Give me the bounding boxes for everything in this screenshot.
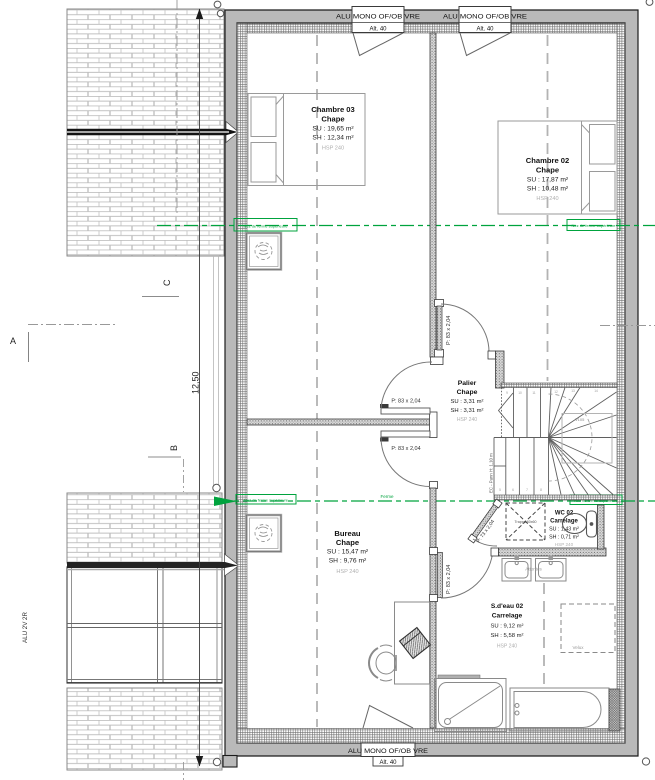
svg-text:SU : 9,12 m²: SU : 9,12 m² xyxy=(490,624,523,630)
svg-text:V105: V105 xyxy=(575,417,585,422)
svg-text:P: 83 x 2,04: P: 83 x 2,04 xyxy=(391,446,420,452)
svg-text:11: 11 xyxy=(532,391,536,395)
svg-text:P: 83 x 2,04: P: 83 x 2,04 xyxy=(446,316,452,345)
svg-text:HSP 240: HSP 240 xyxy=(457,417,477,423)
svg-text:Nez de ferme supérieure: Nez de ferme supérieure xyxy=(244,498,289,503)
svg-text:SH : 3,31 m²: SH : 3,31 m² xyxy=(450,408,483,414)
svg-text:10: 10 xyxy=(518,391,522,395)
svg-text:7: 7 xyxy=(526,488,528,492)
svg-text:B: B xyxy=(169,445,179,451)
svg-text:Chape: Chape xyxy=(336,538,359,547)
svg-text:6: 6 xyxy=(512,488,514,492)
svg-text:9: 9 xyxy=(506,391,508,395)
svg-text:S.d'eau 02: S.d'eau 02 xyxy=(491,603,524,610)
svg-text:SH : 9,76 m²: SH : 9,76 m² xyxy=(329,558,367,565)
svg-text:ALU MONO OF/OB VRE: ALU MONO OF/OB VRE xyxy=(443,14,528,21)
svg-text:Ferme: Ferme xyxy=(380,494,393,499)
svg-text:Chape: Chape xyxy=(321,115,344,124)
svg-text:Nez de ferme supérieure: Nez de ferme supérieure xyxy=(243,224,288,229)
svg-text:WC 02: WC 02 xyxy=(555,511,574,517)
svg-text:Chambre 02: Chambre 02 xyxy=(526,156,569,165)
svg-text:ALU MONO OF/OB VRE: ALU MONO OF/OB VRE xyxy=(336,14,421,21)
svg-text:5: 5 xyxy=(499,488,501,492)
svg-text:Chape: Chape xyxy=(457,389,478,396)
svg-text:ALU MONO OF/OB VRE: ALU MONO OF/OB VRE xyxy=(348,748,428,755)
svg-text:Bureau: Bureau xyxy=(334,529,361,538)
svg-text:HSP 240: HSP 240 xyxy=(497,644,517,650)
svg-text:HSP 240: HSP 240 xyxy=(336,569,358,575)
svg-text:Chape: Chape xyxy=(536,166,559,175)
svg-text:P: 83 x 2,04: P: 83 x 2,04 xyxy=(391,399,420,405)
svg-text:SU : 19,65 m²: SU : 19,65 m² xyxy=(312,126,354,133)
svg-text:8: 8 xyxy=(540,488,542,492)
svg-text:HSP 240: HSP 240 xyxy=(322,146,344,152)
svg-text:SH : 0,71 m²: SH : 0,71 m² xyxy=(549,535,579,541)
svg-text:Alt. 40: Alt. 40 xyxy=(379,760,397,766)
svg-text:13: 13 xyxy=(571,389,575,393)
svg-text:SH : 5,58 m²: SH : 5,58 m² xyxy=(490,633,523,639)
svg-text:SU : 3,31 m²: SU : 3,31 m² xyxy=(450,399,483,405)
svg-text:12,50: 12,50 xyxy=(191,371,201,394)
svg-text:Trappe 60x60: Trappe 60x60 xyxy=(514,520,536,524)
svg-text:SU : 15,47 m²: SU : 15,47 m² xyxy=(327,549,369,556)
svg-text:ALU 2V 2R: ALU 2V 2R xyxy=(22,612,29,643)
svg-text:SU : 1,43 m²: SU : 1,43 m² xyxy=(549,527,579,533)
svg-text:Carrelage: Carrelage xyxy=(492,613,523,620)
svg-text:Palier: Palier xyxy=(458,380,477,387)
svg-text:SU : 17,87 m²: SU : 17,87 m² xyxy=(527,177,569,184)
svg-text:HSP 240: HSP 240 xyxy=(536,196,558,202)
svg-text:Nez de ferme supérieure: Nez de ferme supérieure xyxy=(571,223,616,228)
svg-text:Attentes: Attentes xyxy=(525,567,542,572)
svg-text:P: 83 x 2,04: P: 83 x 2,04 xyxy=(446,565,452,594)
svg-text:Alt. 40: Alt. 40 xyxy=(476,27,494,33)
svg-text:A: A xyxy=(10,336,16,346)
svg-text:Velux: Velux xyxy=(572,645,584,650)
svg-text:EC - Pann H: 1,10 m: EC - Pann H: 1,10 m xyxy=(489,453,494,493)
svg-text:HSP 240: HSP 240 xyxy=(555,542,574,547)
svg-text:C: C xyxy=(162,279,172,286)
svg-text:Carrelage: Carrelage xyxy=(550,519,578,525)
svg-text:SH : 10,48 m²: SH : 10,48 m² xyxy=(527,186,569,193)
svg-text:Chambre 03: Chambre 03 xyxy=(311,105,354,114)
svg-text:12: 12 xyxy=(554,390,558,394)
svg-text:Alt. 40: Alt. 40 xyxy=(369,27,387,33)
svg-text:14: 14 xyxy=(594,389,598,393)
svg-text:SH : 12,34 m²: SH : 12,34 m² xyxy=(312,135,354,142)
